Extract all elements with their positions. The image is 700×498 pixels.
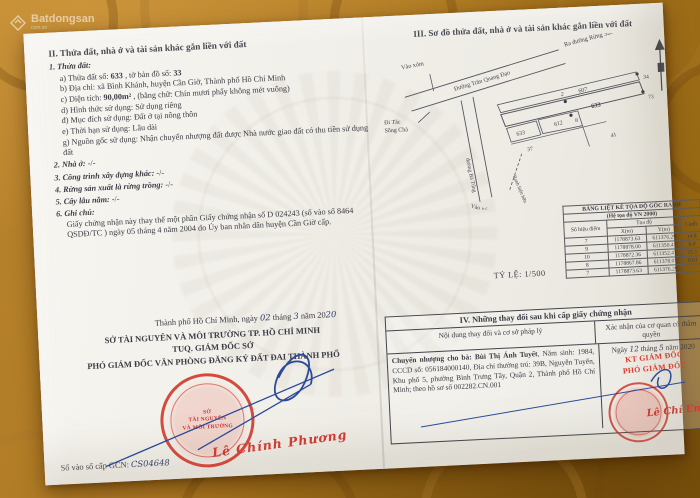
item-label: 2. Nhà ở: [54, 159, 86, 170]
point-label-2: 2 [561, 92, 564, 98]
batdongsan-logo-icon [10, 15, 26, 31]
item-value: -/- [88, 159, 96, 168]
handwritten-year: 20 [325, 309, 336, 320]
handwritten-month: 3 [293, 311, 299, 321]
handwritten-day: 12 [629, 344, 639, 353]
parcel-label-41: 41 [610, 132, 617, 139]
label-song-cha: Sông Chà [384, 127, 408, 134]
parcel-label-37: 37 [527, 146, 534, 153]
section-4-changes-table: IV. Những thay đổi sau khi cấp giấy chứn… [385, 301, 700, 445]
field-label: c) Diện tích: [60, 93, 101, 104]
x-cell: 1178873.63 [609, 266, 648, 276]
photo-of-land-certificate: { "watermark": { "brand": "Batdongsan", … [0, 0, 700, 498]
section-2-parcel-details: II. Thửa đất, nhà ở và tài sản khác gắn … [48, 33, 375, 241]
gcn-registry-number: Số vào sổ cấp GCN: CS04648 [60, 457, 170, 472]
point-label-8: 8 [575, 118, 578, 124]
handwritten-day: 02 [260, 312, 271, 323]
north-arrow-icon [654, 39, 667, 91]
date-mid: tháng [272, 312, 291, 322]
transfer-record-text: Chuyển nhượng cho bà: Bùi Thị Ánh Tuyết,… [387, 344, 602, 438]
authority-confirmation-cell: Ngày 12 tháng 5 năm 2020 KT GIÁM ĐỐC PHÓ… [599, 339, 700, 428]
parcel-label-633b: 633 [516, 130, 526, 138]
field-label: a) Thửa đất số: [59, 71, 108, 82]
parcel-label-633: 633 [591, 101, 602, 110]
item-value: -/- [111, 194, 119, 203]
map-scale-label: TỶ LỆ: 1/500 [493, 269, 545, 281]
parcel-label-607: 607 [578, 87, 588, 95]
watermark: Batdongsan com.vn [10, 14, 95, 31]
edge-cell [683, 263, 700, 272]
parcel-label-612: 612 [554, 120, 564, 128]
date-prefix: Ngày [611, 345, 627, 355]
label-ra-duong-rung-sac: Ra đường Rừng Sác [563, 30, 613, 49]
label-ranh-hien-huu: Ranh hiện hữu [511, 175, 527, 204]
map-sheet-value: 33 [173, 68, 182, 77]
field-value: Đất ở tại nông thôn [134, 110, 198, 122]
field-value: Lâu dài [132, 122, 157, 132]
item-value: -/- [165, 179, 173, 188]
seal-text-line: TÀI NGUYÊN [188, 416, 226, 425]
watermark-sub: com.vn [31, 25, 95, 31]
field-label: , tờ bản đồ số: [125, 68, 172, 79]
y-cell: 611376.29 [648, 264, 684, 274]
item-label: 5. Cây lâu năm: [55, 195, 110, 207]
gcn-handwritten-value: CS04648 [131, 457, 170, 469]
label-di-tac: Đi Tắc [384, 119, 401, 127]
watermark-brand: Batdongsan [31, 14, 95, 25]
label-vao-xom-top: Vào xóm [401, 60, 425, 71]
col-edge-header: Cạnh [681, 216, 700, 233]
cadastral-sketch: Đường Trần Quang Đạo Vào xóm Ra đường Rừ… [366, 30, 690, 215]
point-label-73: 73 [648, 94, 654, 100]
seal-text-line: SỞ [203, 409, 211, 417]
seal-text-line: VÀ MÔI TRƯỜNG [182, 423, 233, 433]
gcn-label: Số vào sổ cấp GCN: [60, 460, 129, 472]
area-value: 90,00m² [103, 92, 131, 102]
certificate-paper: II. Thửa đất, nhà ở và tài sản khác gắn … [23, 3, 684, 486]
coordinate-table: BẢNG LIỆT KÊ TỌA ĐỘ GÓC RANH (Hệ tọa độ … [562, 199, 700, 279]
item-value: -/- [156, 168, 164, 177]
point-label-34: 34 [643, 74, 649, 80]
pt-cell: 7 [566, 268, 609, 278]
field-label: b) Địa chỉ: [60, 83, 95, 94]
parcel-number-value: 633 [110, 71, 123, 81]
date-mid: năm 20 [301, 310, 326, 320]
field-value: Sử dụng riêng [135, 100, 182, 111]
road-label-ba-tong: đường Bà Tổng [464, 157, 478, 193]
